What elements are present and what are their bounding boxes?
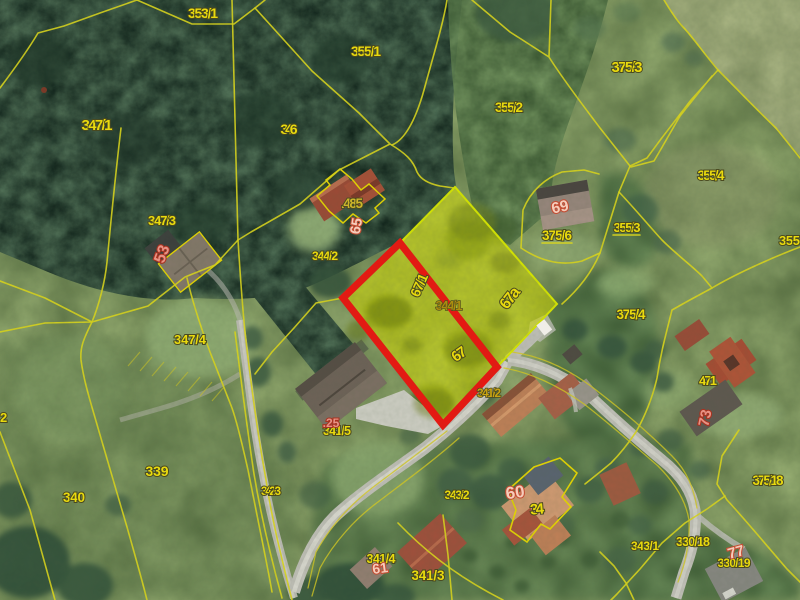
svg-text:343/1: 343/1 [631,539,659,553]
svg-text:375/6: 375/6 [542,228,572,243]
svg-text:61: 61 [371,559,389,577]
svg-text:375/3: 375/3 [612,59,643,76]
svg-text:339: 339 [146,463,169,479]
svg-text:471: 471 [699,373,717,388]
svg-text:.485: .485 [341,196,363,211]
svg-text:60: 60 [504,482,525,503]
svg-text:.25: .25 [323,416,340,430]
svg-text:375/4: 375/4 [617,307,646,322]
svg-text:355/1: 355/1 [351,43,381,59]
svg-text:73: 73 [695,408,715,428]
svg-text:34: 34 [529,500,545,518]
svg-text:347/3: 347/3 [148,213,176,228]
svg-text:344/1: 344/1 [436,298,463,313]
svg-text:340: 340 [63,490,85,505]
svg-text:355: 355 [779,233,800,248]
svg-text:341/3: 341/3 [412,568,445,583]
svg-text:355/4: 355/4 [698,168,725,183]
svg-text:330/18: 330/18 [676,535,710,549]
svg-text:375/18: 375/18 [753,473,784,488]
svg-text:342/3: 342/3 [261,486,281,498]
svg-text:346: 346 [281,121,298,137]
svg-text:65: 65 [348,217,367,236]
svg-text:355/3: 355/3 [614,220,641,235]
svg-text:347/1: 347/1 [82,117,113,134]
svg-text:347/4: 347/4 [174,332,207,347]
svg-text:355/2: 355/2 [495,100,523,115]
svg-text:2: 2 [0,410,7,425]
svg-text:341/2: 341/2 [477,386,501,400]
svg-text:343/2: 343/2 [445,488,470,502]
svg-text:344/2: 344/2 [312,249,338,263]
svg-text:353/1: 353/1 [188,5,218,21]
